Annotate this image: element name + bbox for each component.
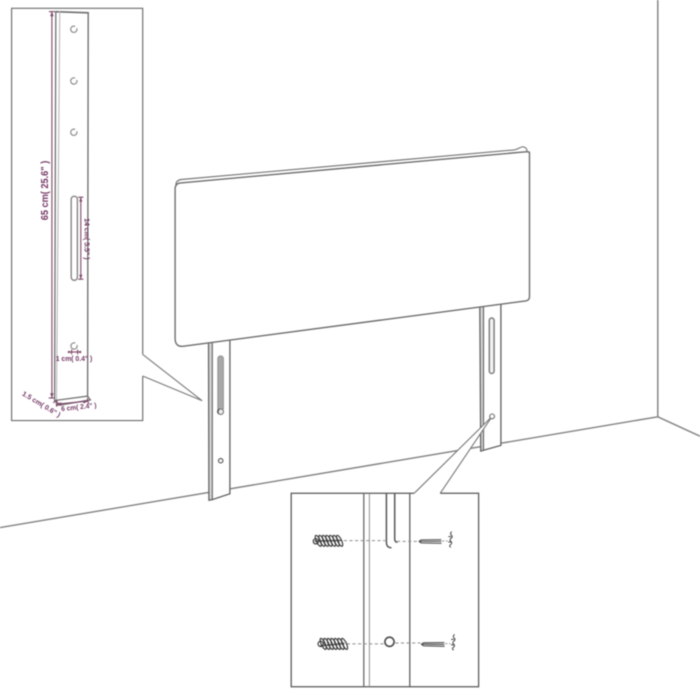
svg-text:14 cm( 5.5" ): 14 cm( 5.5" ) (83, 218, 90, 259)
svg-text:65 cm( 25.6" ): 65 cm( 25.6" ) (39, 161, 51, 221)
svg-text:1 cm( 0.4" ): 1 cm( 0.4" ) (56, 356, 93, 363)
